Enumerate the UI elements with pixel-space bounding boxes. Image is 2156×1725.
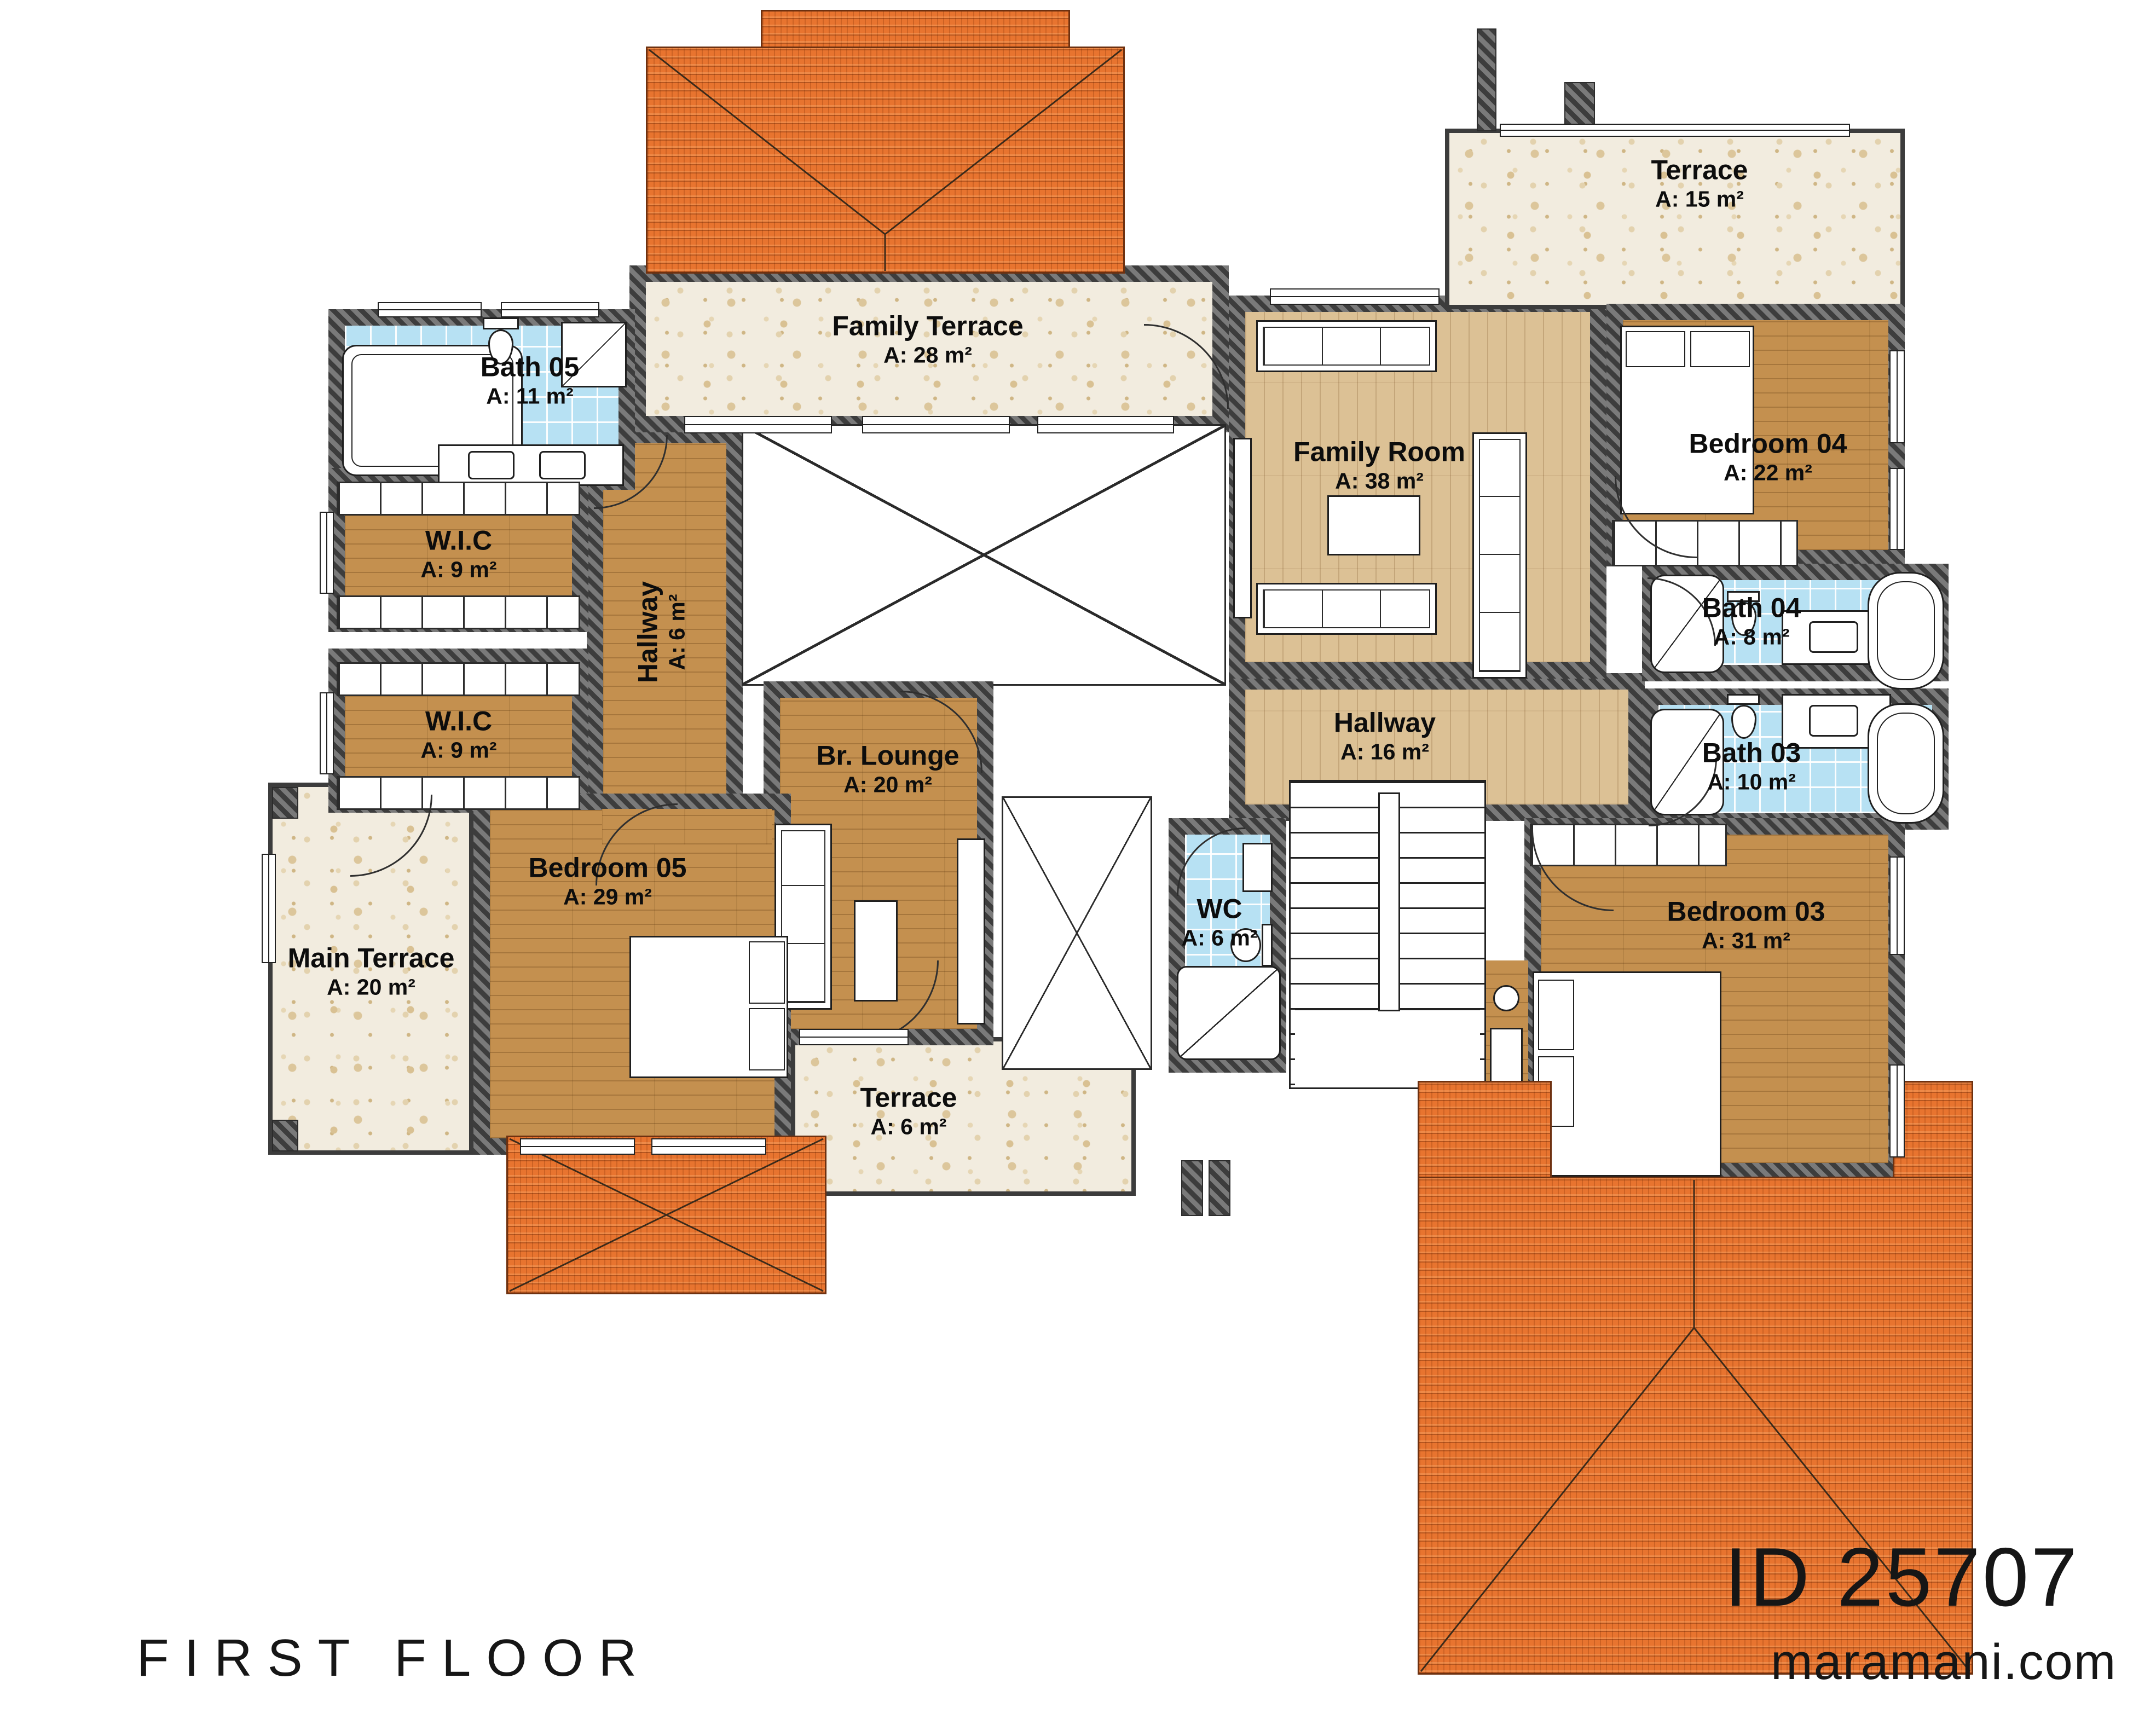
- window-bedroom-04-right-2: [1889, 468, 1905, 550]
- basin-bath-04: [1809, 621, 1858, 653]
- room-area: A: 10 m²: [1702, 769, 1801, 795]
- room-name: Bath 05: [481, 352, 580, 384]
- coffee-table-family-room: [1327, 495, 1420, 555]
- stair-landing: [1295, 1009, 1480, 1085]
- label-terrace-upper: Terrace A: 15 m²: [1651, 155, 1748, 212]
- room-name: Terrace: [1651, 155, 1748, 187]
- label-family-terrace: Family Terrace A: 28 m²: [832, 311, 1023, 368]
- plan-id: ID 25707: [1724, 1530, 2079, 1625]
- pillar-main-terrace-bottom: [272, 1120, 298, 1151]
- window-bedroom-04-right-1: [1889, 350, 1905, 443]
- roof-hip-lines: [648, 48, 1123, 272]
- roof-top-main: [646, 47, 1125, 274]
- label-wc: WC A: 6 m²: [1182, 894, 1258, 951]
- window-bedroom-03-right-2: [1889, 1064, 1905, 1157]
- label-bedroom-05: Bedroom 05 A: 29 m²: [529, 853, 687, 910]
- window-family-terrace-2: [862, 416, 1010, 433]
- stair-stringer: [1378, 792, 1400, 1011]
- room-area: A: 9 m²: [421, 737, 497, 763]
- label-wic-lower: W.I.C A: 9 m²: [421, 706, 497, 763]
- void-open-to-below: [742, 424, 1226, 686]
- bathtub-bath-04: [1868, 572, 1944, 690]
- label-bath-05: Bath 05 A: 11 m²: [481, 352, 580, 409]
- basin-bath-03: [1809, 705, 1858, 737]
- tv-cabinet-family-room: [1233, 438, 1252, 618]
- label-bath-04: Bath 04 A: 8 m²: [1702, 593, 1801, 650]
- room-area: A: 38 m²: [1293, 468, 1465, 494]
- room-area: A: 20 m²: [816, 772, 959, 797]
- label-family-room: Family Room A: 38 m²: [1293, 437, 1465, 494]
- pillar-bottom-center-right: [1209, 1160, 1230, 1216]
- room-name: Br. Lounge: [816, 740, 959, 772]
- window-bedroom-05-1: [520, 1138, 635, 1155]
- label-wic-upper: W.I.C A: 9 m²: [421, 525, 497, 583]
- label-br-lounge: Br. Lounge A: 20 m²: [816, 740, 959, 798]
- label-bedroom-04: Bedroom 04 A: 22 m²: [1689, 429, 1847, 486]
- room-name: Hallway: [633, 581, 664, 683]
- basin-bath-05-1: [468, 451, 515, 479]
- pillar-top-right: [1564, 82, 1595, 126]
- pillow: [749, 941, 785, 1004]
- sofa-cushions: [1263, 589, 1430, 628]
- room-area: A: 15 m²: [1651, 186, 1748, 212]
- room-area: A: 22 m²: [1689, 460, 1847, 485]
- void-entrance: [1002, 796, 1152, 1070]
- label-bath-03: Bath 03 A: 10 m²: [1702, 738, 1801, 795]
- label-main-terrace: Main Terrace A: 20 m²: [288, 943, 455, 1000]
- room-area: A: 20 m²: [288, 974, 455, 1000]
- shower-wc: [1177, 966, 1281, 1060]
- roof-bottom-left: [506, 1136, 826, 1294]
- room-name: Bedroom 04: [1689, 429, 1847, 460]
- window-bedroom-03-right-1: [1889, 856, 1905, 955]
- wall-strip-top-right: [1477, 28, 1496, 131]
- sofa-family-room-right: [1472, 432, 1527, 679]
- pillow: [1538, 980, 1574, 1050]
- sink-wc: [1242, 843, 1273, 892]
- label-hallway-main: Hallway A: 16 m²: [1334, 708, 1436, 765]
- window-wic-lower: [320, 692, 334, 774]
- room-name: W.I.C: [421, 525, 497, 557]
- room-name: Bedroom 05: [529, 853, 687, 884]
- window-family-terrace-3: [1037, 416, 1174, 433]
- lamp-bedroom-03: [1493, 985, 1519, 1011]
- window-br-lounge: [799, 1029, 909, 1045]
- toilet-tank-bath-05: [483, 317, 519, 329]
- room-name: Bath 03: [1702, 738, 1801, 769]
- pillar-main-terrace-top: [272, 787, 298, 819]
- room-name: Bedroom 03: [1667, 896, 1825, 928]
- label-hallway-small: Hallway A: 6 m²: [633, 581, 690, 683]
- window-bath-05-2: [501, 302, 599, 317]
- floor-title: FIRST FLOOR: [137, 1628, 652, 1688]
- room-area: A: 6 m²: [1182, 925, 1258, 951]
- room-area: A: 8 m²: [1702, 624, 1801, 650]
- website: maramani.com: [1771, 1634, 2117, 1691]
- window-bedroom-05-2: [651, 1138, 766, 1155]
- floor-plan-page: { "title_block": { "floor_label": "FIRST…: [0, 0, 2156, 1725]
- room-area: A: 9 m²: [421, 557, 497, 582]
- room-name: Hallway: [1334, 708, 1436, 739]
- window-family-room-top: [1270, 288, 1440, 305]
- toilet-tank-wc: [1262, 924, 1273, 966]
- pillow: [749, 1008, 785, 1070]
- room-name: Bath 04: [1702, 593, 1801, 624]
- window-terrace-upper-top: [1500, 124, 1850, 137]
- closet-wic-lower-top: [337, 662, 580, 696]
- sofa-cushions: [1263, 327, 1430, 366]
- room-name: WC: [1182, 894, 1258, 925]
- room-name: Family Terrace: [832, 311, 1023, 343]
- window-wic-upper: [320, 512, 334, 594]
- basin-bath-05-2: [539, 451, 586, 479]
- closet-wic-upper-top: [337, 482, 580, 516]
- window-main-terrace: [262, 854, 276, 963]
- room-area: A: 16 m²: [1334, 739, 1436, 765]
- room-area: A: 6 m²: [664, 581, 690, 683]
- sofa-family-room-top: [1256, 320, 1437, 372]
- room-name: Terrace: [860, 1083, 957, 1114]
- media-console-br-lounge: [957, 838, 985, 1024]
- room-name: Family Room: [1293, 437, 1465, 468]
- room-area: A: 31 m²: [1667, 928, 1825, 953]
- toilet-tank-bath-03: [1727, 694, 1760, 705]
- bathtub-inner: [1877, 713, 1935, 814]
- sofa-family-room-bottom: [1256, 583, 1437, 635]
- label-bedroom-03: Bedroom 03 A: 31 m²: [1667, 896, 1825, 954]
- window-family-terrace-1: [684, 416, 832, 433]
- pillow: [1690, 331, 1750, 367]
- room-area: A: 29 m²: [529, 884, 687, 910]
- sofa-cushions: [1479, 439, 1521, 672]
- bathtub-inner: [1877, 581, 1935, 680]
- pillow: [1626, 331, 1685, 367]
- label-terrace-lower: Terrace A: 6 m²: [860, 1083, 957, 1140]
- room-name: W.I.C: [421, 706, 497, 738]
- room-area: A: 6 m²: [860, 1114, 957, 1139]
- room-name: Main Terrace: [288, 943, 455, 975]
- bathtub-bath-03: [1868, 703, 1944, 824]
- closet-wic-upper-bottom: [337, 595, 580, 629]
- room-area: A: 28 m²: [832, 342, 1023, 368]
- roof-hip-lines: [508, 1137, 825, 1293]
- room-area: A: 11 m²: [481, 383, 580, 409]
- staircase: [1289, 780, 1486, 1089]
- window-bath-05-1: [378, 302, 482, 317]
- pillar-bottom-center-left: [1181, 1160, 1203, 1216]
